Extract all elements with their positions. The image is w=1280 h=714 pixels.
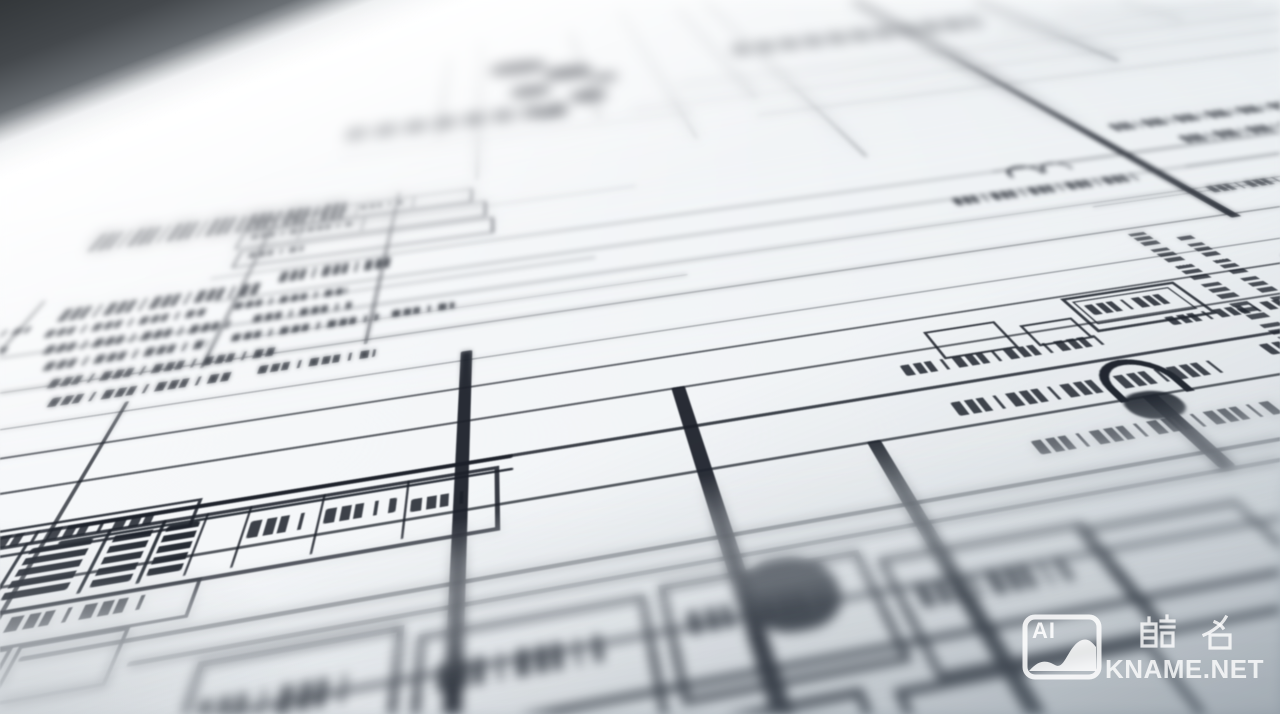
ai-icon-label: AI (1032, 618, 1056, 644)
schematic-mark (0, 98, 1280, 403)
schematic-mark (730, 18, 986, 55)
schematic-mark (0, 326, 33, 342)
schematic-mark (1000, 164, 1045, 177)
schematic-mark (951, 173, 1147, 205)
schematic-mark (230, 314, 379, 342)
schematic-paper-sheet (0, 0, 1280, 714)
schematic-mark (1272, 245, 1280, 271)
schematic-mark (1107, 87, 1280, 131)
schematic-mark (1204, 166, 1280, 192)
schematic-mark (590, 73, 620, 82)
schematic-mark (1059, 0, 1280, 9)
schematic-mark (0, 347, 9, 362)
watermark: AI 酷 名 KNAME.NET (1016, 608, 1272, 694)
schematic-mark (476, 41, 482, 179)
schematic-mark (489, 58, 547, 77)
site-name-text: KNAME.NET (1105, 654, 1264, 685)
cjk-watermark: 酷 名 (1139, 614, 1239, 652)
paper-sheet-layer-near-blur (0, 0, 1280, 714)
schematic-mark (997, 0, 1184, 21)
photographed-schematic-scene: AI 酷 名 KNAME.NET (0, 0, 1280, 714)
schematic-mark (568, 89, 608, 103)
schematic-mark (344, 102, 568, 140)
schematic-mark (510, 84, 553, 99)
